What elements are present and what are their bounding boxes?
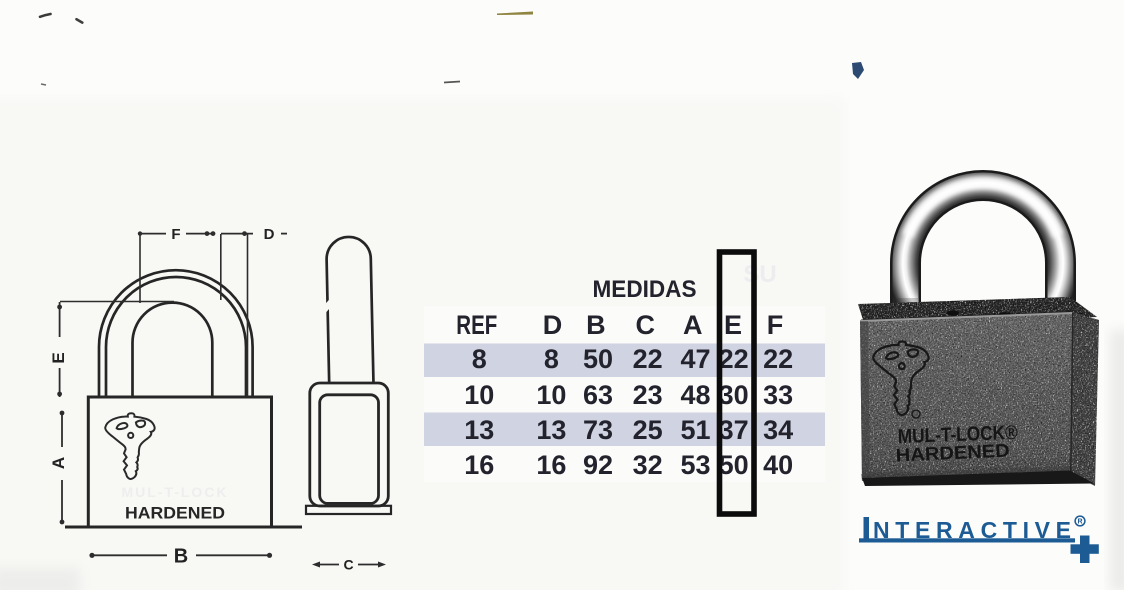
svg-text:E: E <box>49 352 68 363</box>
svg-text:63: 63 <box>583 380 613 410</box>
svg-text:F: F <box>171 226 180 243</box>
svg-text:B: B <box>586 310 606 340</box>
svg-text:25: 25 <box>633 415 663 445</box>
svg-text:MUL-T-LOCK: MUL-T-LOCK <box>121 484 228 500</box>
svg-text:REF: REF <box>456 310 497 340</box>
svg-text:51: 51 <box>680 415 710 445</box>
svg-text:48: 48 <box>680 380 710 410</box>
svg-text:F: F <box>767 310 784 340</box>
svg-text:47: 47 <box>680 344 710 374</box>
svg-text:D: D <box>264 226 275 243</box>
svg-text:50: 50 <box>719 450 749 480</box>
svg-text:22: 22 <box>633 344 663 374</box>
svg-text:R: R <box>1077 519 1082 526</box>
svg-text:33: 33 <box>763 380 793 410</box>
svg-text:C: C <box>343 557 353 573</box>
svg-text:A: A <box>683 310 703 340</box>
svg-text:53: 53 <box>680 450 710 480</box>
svg-text:A: A <box>49 457 68 469</box>
svg-text:B: B <box>174 546 188 568</box>
svg-text:13: 13 <box>536 415 566 445</box>
svg-text:73: 73 <box>583 415 613 445</box>
svg-text:D: D <box>543 310 563 340</box>
svg-text:16: 16 <box>464 450 494 480</box>
svg-text:40: 40 <box>763 450 793 480</box>
svg-text:E: E <box>724 310 742 340</box>
svg-text:C: C <box>636 310 656 340</box>
svg-text:10: 10 <box>536 380 566 410</box>
svg-text:32: 32 <box>633 450 663 480</box>
svg-text:10: 10 <box>464 380 494 410</box>
svg-text:30: 30 <box>719 380 749 410</box>
svg-text:22: 22 <box>719 344 749 374</box>
svg-text:SU: SU <box>743 261 776 288</box>
svg-text:37: 37 <box>719 415 749 445</box>
svg-text:23: 23 <box>633 380 663 410</box>
svg-text:22: 22 <box>763 344 793 374</box>
svg-text:34: 34 <box>763 415 793 445</box>
svg-text:50: 50 <box>583 344 613 374</box>
svg-text:HARDENED: HARDENED <box>125 505 225 523</box>
svg-text:MEDIDAS: MEDIDAS <box>593 276 697 303</box>
svg-text:92: 92 <box>583 450 613 480</box>
svg-text:16: 16 <box>536 450 566 480</box>
svg-text:8: 8 <box>472 344 487 374</box>
svg-text:8: 8 <box>544 344 559 374</box>
svg-text:13: 13 <box>464 415 494 445</box>
